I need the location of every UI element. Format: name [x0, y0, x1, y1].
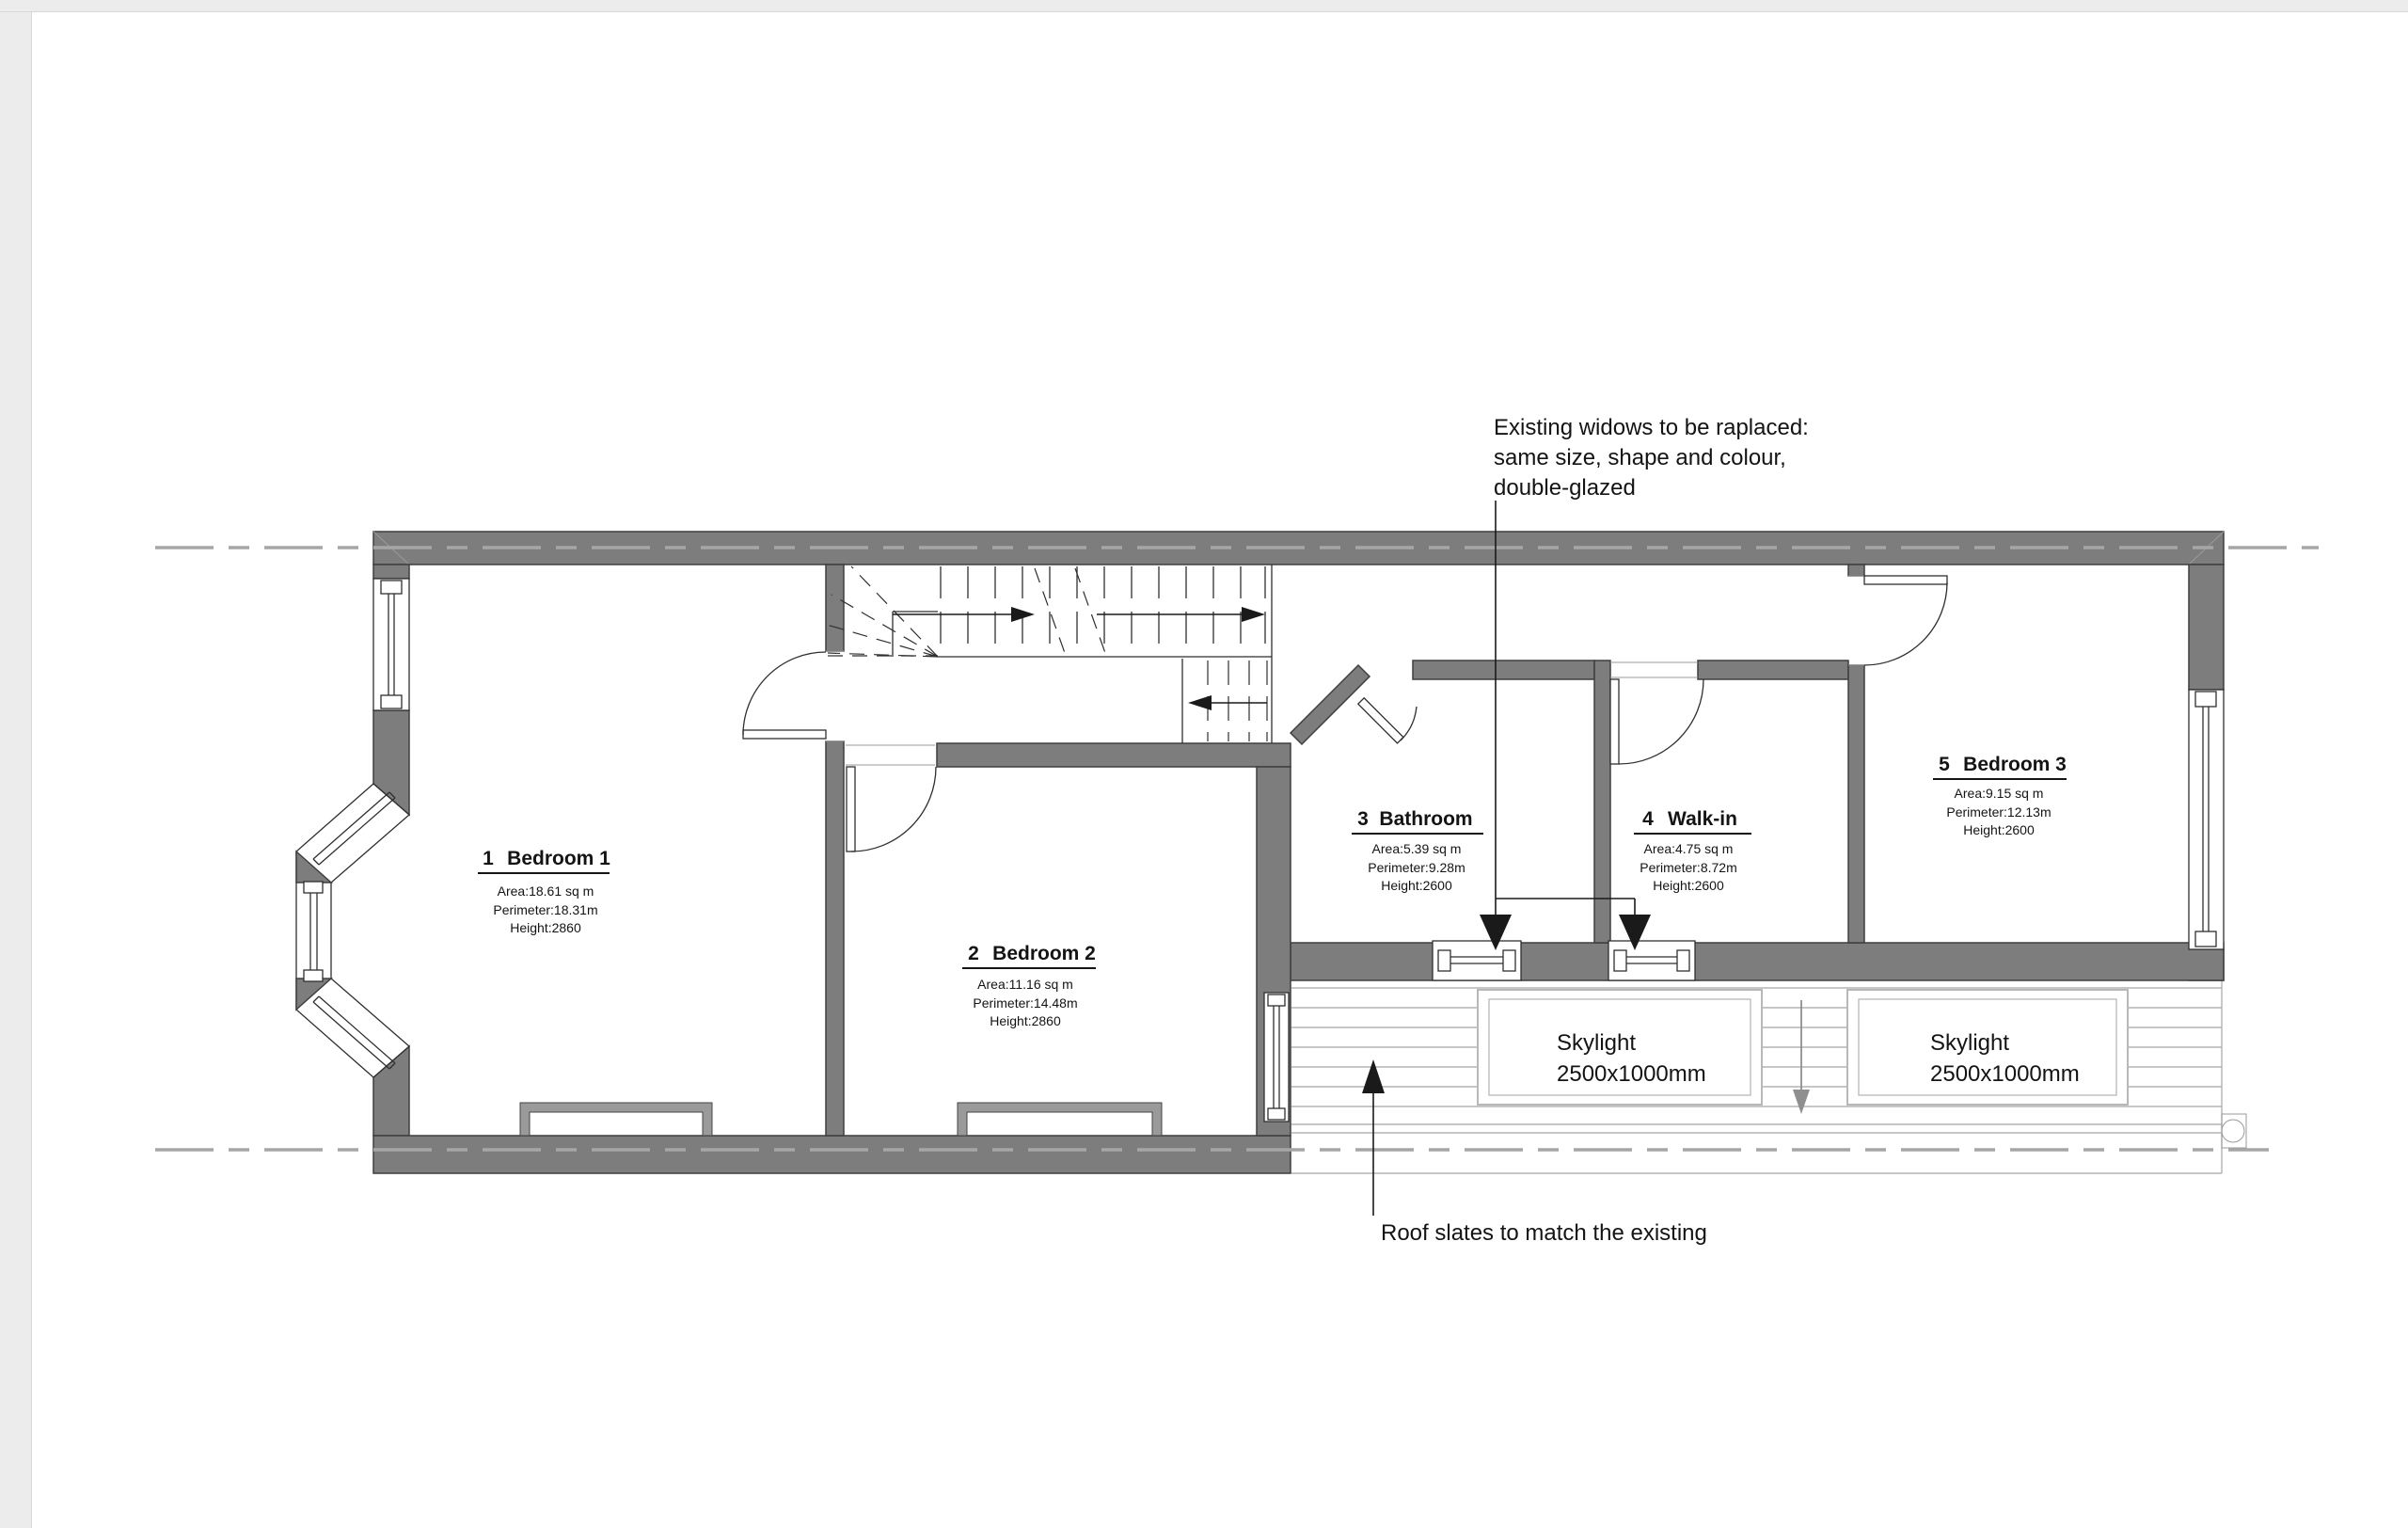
floor-plan: Skylight 2500x1000mm Skylight 2500x1000m…	[0, 0, 2408, 1528]
room-label-walkin: 4 Walk-in Area:4.75 sq m Perimeter:8.72m…	[1634, 808, 1751, 893]
room-3-name: Bathroom	[1379, 808, 1472, 830]
room-5-name: Bedroom 3	[1963, 754, 2067, 775]
wall-bed2-top	[937, 743, 1291, 767]
room-4-perimeter: Perimeter:8.72m	[1640, 860, 1736, 875]
wall-bed1-stairs	[826, 565, 844, 651]
wall-walkin-bed3	[1848, 665, 1864, 943]
chimney-bedroom2	[958, 1103, 1162, 1136]
room-5-number: 5	[1939, 754, 1950, 775]
room-label-bedroom3: 5 Bedroom 3 Area:9.15 sq m Perimeter:12.…	[1933, 754, 2067, 837]
wall-bathroom-top	[1413, 661, 1594, 679]
room-1-number: 1	[483, 848, 494, 869]
room-label-bedroom2: 2 Bedroom 2 Area:11.16 sq m Perimeter:14…	[962, 943, 1096, 1028]
room-1-height: Height:2860	[510, 920, 581, 935]
room-4-name: Walk-in	[1668, 808, 1737, 830]
annotation-windows: Existing widows to be raplaced: same siz…	[1494, 415, 1809, 501]
bay-window	[296, 784, 409, 1077]
room-label-bedroom1: 1 Bedroom 1 Area:18.61 sq m Perimeter:18…	[478, 848, 610, 935]
room-3-perimeter: Perimeter:9.28m	[1368, 860, 1465, 875]
door-bedroom2	[846, 745, 936, 852]
wall-bed1-bed2	[826, 741, 844, 1136]
leader-windows-note	[1480, 501, 1651, 950]
wall-left-upper	[373, 565, 409, 579]
window-bedroom3	[2189, 690, 2224, 949]
room-1-perimeter: Perimeter:18.31m	[493, 902, 597, 917]
annotation-windows-line1: Existing widows to be raplaced:	[1494, 415, 1809, 440]
wall-bottom-bedrooms	[373, 1136, 1291, 1173]
soil-pipe	[2222, 1114, 2246, 1148]
room-5-area: Area:9.15 sq m	[1955, 786, 2044, 801]
annotation-windows-line3: double-glazed	[1494, 475, 1636, 501]
skylights: Skylight 2500x1000mm Skylight 2500x1000m…	[1478, 990, 2128, 1114]
chimney-bedroom1	[520, 1103, 712, 1136]
skylight-1-size: 2500x1000mm	[1557, 1061, 1706, 1087]
window-walkin	[1608, 941, 1695, 980]
wall-bath-walkin	[1594, 661, 1610, 943]
room-3-number: 3	[1357, 808, 1369, 830]
drawing-canvas: Skylight 2500x1000mm Skylight 2500x1000m…	[0, 0, 2408, 1528]
skylight-2-title: Skylight	[1930, 1030, 2009, 1056]
wall-bottom-block	[1291, 943, 2224, 980]
door-walkin	[1610, 662, 1703, 764]
skylight-1: Skylight 2500x1000mm	[1478, 990, 1762, 1105]
room-label-bathroom: 3 Bathroom Area:5.39 sq m Perimeter:9.28…	[1352, 808, 1483, 893]
roof-slope-arrow	[1793, 1000, 1810, 1114]
door-bathroom	[1358, 698, 1417, 743]
annotation-roof: Roof slates to match the existing	[1381, 1220, 1707, 1246]
skylight-2: Skylight 2500x1000mm	[1847, 990, 2128, 1105]
room-2-height: Height:2860	[990, 1013, 1061, 1028]
skylight-1-title: Skylight	[1557, 1030, 1636, 1056]
skylight-2-size: 2500x1000mm	[1930, 1061, 2080, 1087]
room-4-height: Height:2600	[1653, 878, 1724, 893]
room-2-number: 2	[968, 943, 979, 964]
wall-right-upper	[2189, 565, 2224, 690]
room-1-name: Bedroom 1	[507, 848, 610, 869]
room-2-perimeter: Perimeter:14.48m	[973, 995, 1077, 1011]
window-bedroom2-roof	[1264, 993, 1289, 1122]
room-5-height: Height:2600	[1963, 822, 2035, 837]
wall-walkin-top	[1698, 661, 1848, 679]
room-4-number: 4	[1642, 808, 1654, 830]
leader-roof-note	[1362, 1059, 1385, 1216]
window-bathroom	[1433, 941, 1521, 980]
door-bedroom3	[1848, 576, 1947, 665]
room-1-area: Area:18.61 sq m	[498, 883, 594, 899]
room-5-perimeter: Perimeter:12.13m	[1946, 804, 2051, 820]
room-2-name: Bedroom 2	[992, 943, 1096, 964]
room-3-height: Height:2600	[1381, 878, 1452, 893]
room-2-area: Area:11.16 sq m	[977, 977, 1073, 992]
window-bedroom1	[373, 579, 409, 710]
room-3-area: Area:5.39 sq m	[1372, 841, 1462, 856]
stairs	[827, 565, 1272, 743]
room-4-area: Area:4.75 sq m	[1644, 841, 1734, 856]
doors	[743, 576, 1947, 852]
wall-bathroom-chamfer	[1291, 665, 1370, 744]
annotation-windows-line2: same size, shape and colour,	[1494, 445, 1786, 470]
wall-walkin-bed3-upper	[1848, 565, 1864, 576]
door-bedroom1	[743, 651, 844, 741]
